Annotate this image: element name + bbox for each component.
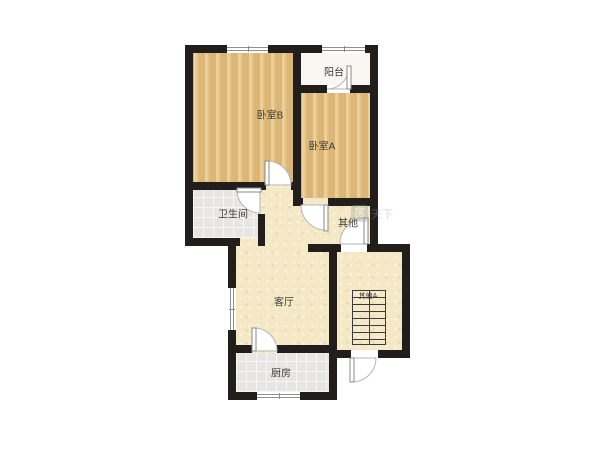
door-bedroom-b bbox=[265, 161, 291, 185]
watermark-text: 天下 bbox=[371, 206, 393, 222]
bedroom-a-label: 卧室A bbox=[309, 138, 336, 153]
door-entry bbox=[350, 358, 376, 382]
kitchen-label: 厨房 bbox=[271, 365, 291, 380]
bathroom-label: 卫生间 bbox=[218, 206, 248, 221]
door-bedroom-a bbox=[301, 205, 328, 231]
site-watermark: 房 天下 bbox=[351, 205, 393, 222]
doors-layer bbox=[0, 0, 600, 450]
living-room-label: 客厅 bbox=[274, 294, 294, 309]
watermark-logo-icon: 房 bbox=[351, 205, 368, 222]
other-a-label: 其他A bbox=[359, 291, 378, 301]
bedroom-b-label: 卧室B bbox=[257, 107, 284, 122]
door-kitchen bbox=[252, 328, 277, 351]
floor-plan: 阳台 卧室B 卧室A 卫生间 其他 客厅 其他A 厨房 房 天下 bbox=[0, 0, 600, 450]
balcony-label: 阳台 bbox=[324, 64, 344, 79]
